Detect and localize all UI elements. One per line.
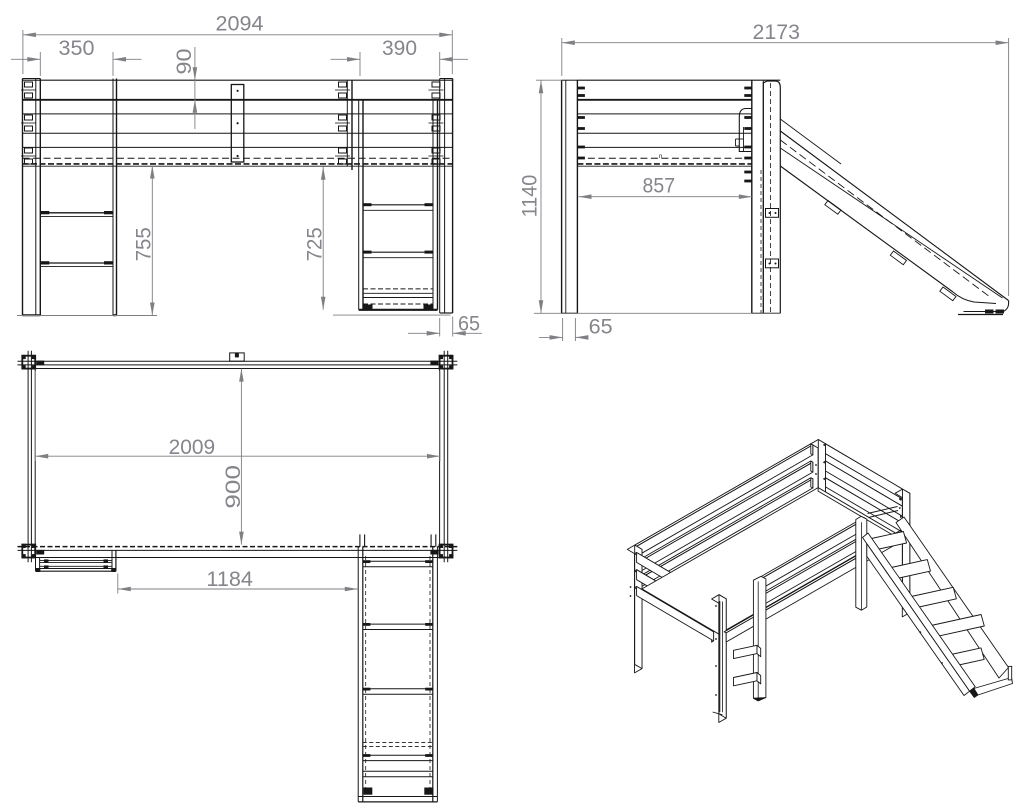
svg-text:1140: 1140	[519, 175, 542, 218]
svg-text:390: 390	[382, 37, 417, 60]
svg-text:1184: 1184	[206, 568, 253, 591]
svg-text:2173: 2173	[753, 21, 801, 44]
svg-text:350: 350	[59, 37, 95, 60]
svg-text:65: 65	[589, 316, 613, 339]
svg-text:90: 90	[173, 49, 196, 75]
svg-text:2094: 2094	[216, 13, 264, 36]
svg-text:2009: 2009	[169, 436, 216, 459]
svg-text:65: 65	[458, 313, 480, 336]
svg-text:900: 900	[222, 465, 245, 509]
svg-text:755: 755	[133, 227, 156, 261]
svg-text:725: 725	[304, 227, 327, 261]
svg-text:n: n	[659, 154, 662, 160]
svg-text:857: 857	[643, 175, 676, 198]
